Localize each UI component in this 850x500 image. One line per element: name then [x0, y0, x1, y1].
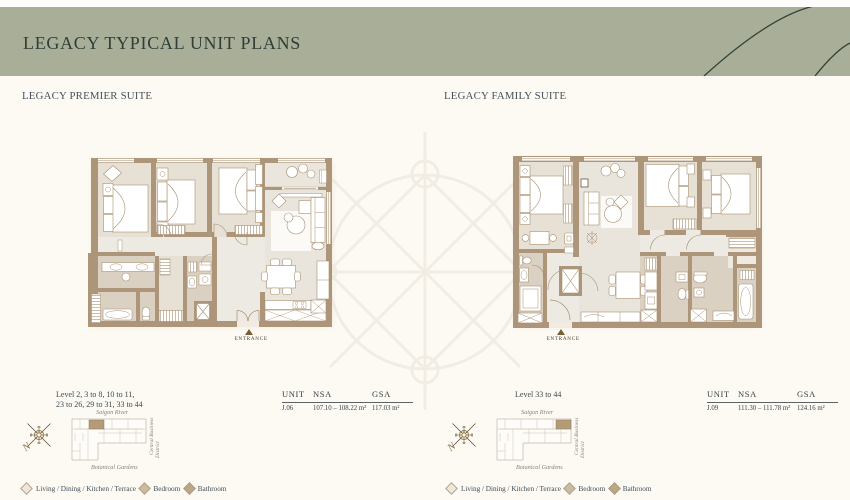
- svg-text:District: District: [155, 441, 161, 459]
- svg-text:Saigon River: Saigon River: [521, 409, 554, 416]
- svg-text:Botanical Gardens: Botanical Gardens: [516, 464, 563, 471]
- svg-text:Botanical Gardens: Botanical Gardens: [91, 464, 138, 471]
- svg-text:District: District: [580, 441, 586, 459]
- svg-text:Saigon River: Saigon River: [96, 409, 129, 416]
